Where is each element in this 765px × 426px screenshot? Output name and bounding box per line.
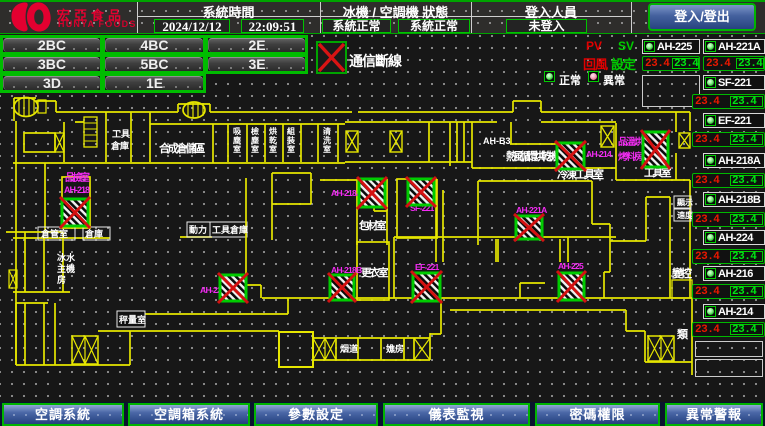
- svg-text:品檢室: 品檢室: [65, 171, 90, 184]
- svg-text:顯示: 顯示: [677, 198, 693, 207]
- svg-text:秤量室: 秤量室: [119, 314, 146, 325]
- svg-text:室: 室: [269, 144, 277, 154]
- svg-text:倉庫: 倉庫: [110, 140, 129, 151]
- svg-text:塵: 塵: [251, 135, 259, 145]
- svg-text:塵: 塵: [233, 135, 241, 145]
- svg-text:烘: 烘: [269, 126, 277, 136]
- svg-text:AH-225: AH-225: [558, 261, 584, 271]
- svg-text:清: 清: [323, 126, 331, 136]
- svg-text:倉管室: 倉管室: [40, 228, 68, 239]
- svg-text:室: 室: [251, 144, 259, 154]
- svg-text:室: 室: [323, 144, 331, 154]
- svg-text:AH-218A: AH-218A: [331, 188, 362, 198]
- svg-text:室: 室: [233, 144, 241, 154]
- svg-text:冰水: 冰水: [57, 252, 76, 263]
- svg-text:EF-221: EF-221: [415, 262, 440, 272]
- svg-text:嫶房: 嫶房: [386, 343, 404, 354]
- svg-text:烟道: 烟道: [340, 343, 358, 354]
- svg-text:檢: 檢: [251, 126, 259, 136]
- svg-text:AH-214: AH-214: [586, 149, 612, 159]
- svg-text:工具倉庫: 工具倉庫: [212, 224, 248, 235]
- svg-text:AH-B3: AH-B3: [483, 136, 511, 146]
- svg-text:包材室: 包材室: [359, 219, 387, 232]
- svg-text:工具: 工具: [112, 129, 130, 139]
- svg-text:類: 類: [676, 327, 689, 341]
- svg-text:吸: 吸: [233, 127, 241, 136]
- svg-text:品溫烘: 品溫烘: [618, 136, 644, 148]
- svg-text:AH-218: AH-218: [64, 185, 90, 195]
- svg-text:組: 組: [287, 126, 295, 136]
- svg-text:熱風循環烘乾機: 熱風循環烘乾機: [506, 149, 559, 163]
- svg-text:乾: 乾: [269, 135, 277, 145]
- svg-text:室: 室: [287, 144, 295, 154]
- svg-text:房: 房: [57, 274, 66, 285]
- svg-text:動力: 動力: [189, 224, 207, 235]
- svg-text:倉庫: 倉庫: [84, 228, 103, 239]
- svg-text:主機: 主機: [57, 263, 75, 274]
- svg-text:變控: 變控: [672, 266, 692, 280]
- svg-text:裝: 裝: [286, 135, 296, 145]
- svg-text:合成倉儲區: 合成倉儲區: [159, 141, 205, 155]
- svg-text:更衣室: 更衣室: [361, 266, 389, 279]
- svg-text:洗: 洗: [323, 135, 331, 145]
- svg-text:烤料房: 烤料房: [618, 151, 643, 163]
